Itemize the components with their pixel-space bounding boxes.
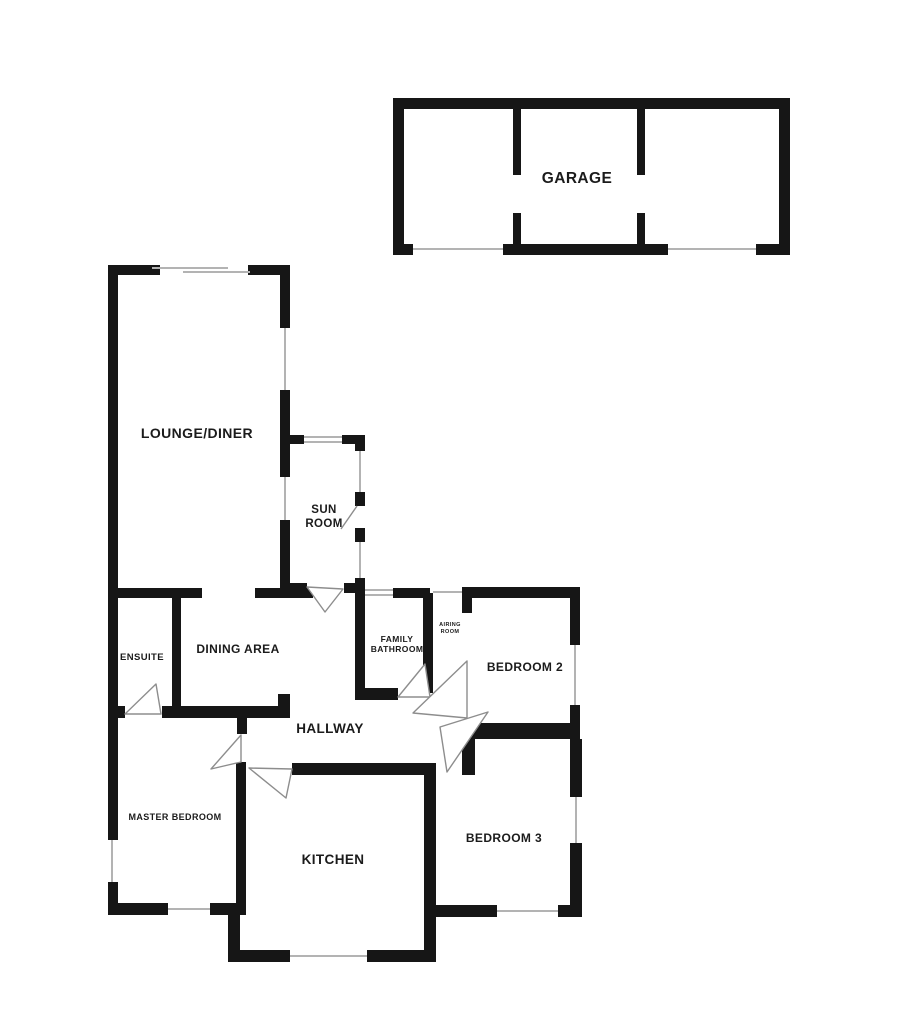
garage-partition-1-bottom	[513, 213, 521, 244]
bedroom2-wall-top	[462, 587, 580, 598]
room-label-hallway: HALLWAY	[296, 721, 364, 736]
ensuite-wall-bottom-left	[108, 706, 125, 718]
bedroom3-wall-bottom-right	[558, 905, 582, 917]
walls	[108, 98, 790, 962]
bathroom-wall-left	[355, 582, 365, 700]
room-label-sun-room-line2: ROOM	[305, 518, 342, 530]
garage-wall-bottom-right-stub	[756, 244, 790, 255]
kitchen-wall-bottom-right	[367, 950, 435, 962]
room-label-bedroom-2: BEDROOM 2	[487, 660, 563, 674]
lounge-wall-right-b	[280, 390, 290, 477]
sunroom-exterior-door	[341, 506, 357, 529]
dining-wall-top-left	[108, 588, 202, 598]
bathroom-wall-bottom	[355, 688, 398, 700]
floorplan-svg: GARAGE LOUNGE/DINER SUN ROOM ENSUITE DIN…	[0, 0, 910, 1024]
garage-partition-2-bottom	[637, 213, 645, 244]
garage-wall-right	[779, 98, 790, 255]
kitchen-door	[249, 768, 292, 798]
garage-wall-top	[393, 98, 790, 109]
sunroom-wall-right-c	[355, 528, 365, 542]
room-label-master-bedroom: MASTER BEDROOM	[128, 812, 221, 822]
bedroom2-wall-right-a	[570, 587, 580, 645]
room-label-kitchen: KITCHEN	[302, 852, 365, 867]
garage-partition-2-top	[637, 109, 645, 175]
kitchen-wall-bottom-left	[228, 950, 290, 962]
room-label-sun-room-line1: SUN	[311, 504, 336, 516]
room-label-lounge-diner: LOUNGE/DINER	[141, 425, 253, 441]
sunroom-wall-top-left	[290, 435, 304, 444]
room-label-airing-room-line1: AIRING	[439, 622, 461, 628]
master-kitchen-divider	[236, 762, 246, 915]
dining-wall-bottom	[162, 706, 290, 718]
hall-stub-master	[237, 712, 247, 734]
room-label-airing-room-line2: ROOM	[441, 629, 460, 635]
master-wall-bottom-left	[108, 903, 168, 915]
dining-wall-top-right	[255, 588, 313, 598]
sunroom-hall-door	[307, 587, 343, 612]
lounge-wall-right-a	[280, 265, 290, 328]
garage-wall-left	[393, 98, 404, 255]
room-label-bedroom-3: BEDROOM 3	[466, 831, 542, 845]
bedroom2-wall-left-stub	[462, 587, 472, 613]
room-label-dining-area: DINING AREA	[196, 642, 279, 656]
kitchen-wall-top	[292, 763, 425, 775]
ensuite-dining-divider	[172, 593, 181, 712]
dining-wall-return-stub	[278, 694, 290, 708]
bathroom-door	[398, 664, 430, 697]
kitchen-bedroom3-divider	[424, 763, 436, 962]
house-wall-right-a	[570, 739, 582, 797]
garage-wall-bottom-left-stub	[393, 244, 413, 255]
ensuite-door	[125, 684, 161, 714]
house-wall-left-upper	[108, 265, 118, 840]
floorplan-canvas: GARAGE LOUNGE/DINER SUN ROOM ENSUITE DIN…	[0, 0, 910, 1024]
room-label-ensuite: ENSUITE	[120, 652, 164, 663]
sunroom-wall-right-a	[355, 435, 365, 451]
bedroom3-wall-bottom-left	[435, 905, 497, 917]
room-label-family-bathroom-line1: FAMILY	[381, 634, 414, 644]
garage-wall-bottom-center	[503, 244, 668, 255]
lounge-wall-right-c	[280, 520, 290, 593]
garage-partition-1-top	[513, 109, 521, 175]
room-label-garage: GARAGE	[542, 170, 612, 187]
room-labels: GARAGE LOUNGE/DINER SUN ROOM ENSUITE DIN…	[120, 170, 612, 867]
bedroom2-bedroom3-wall	[462, 723, 580, 739]
room-label-family-bathroom-line2: BATHROOM	[371, 644, 424, 654]
sunroom-wall-right-b	[355, 492, 365, 506]
